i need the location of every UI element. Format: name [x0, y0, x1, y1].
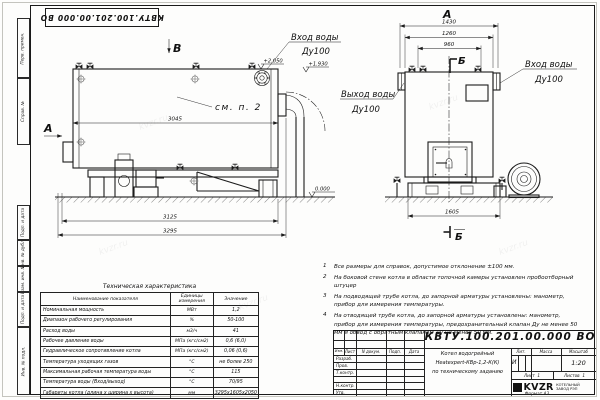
tb-sheets: Листов 1	[553, 373, 596, 378]
dim-1260: 1260	[442, 31, 456, 37]
elev-1930: +1.930	[309, 61, 329, 67]
base-beam	[88, 170, 278, 177]
valve-icon	[249, 63, 256, 69]
label-water-outlet-dn: Ду100	[351, 105, 380, 115]
valve-icon	[499, 177, 506, 183]
table-row: Гидравлическое сопротивление котлаМПа (к…	[41, 347, 259, 357]
valve-icon	[87, 63, 94, 69]
table-row: Температура воды (Вход/выход)°С70/95	[41, 378, 259, 388]
label-water-outlet: Выход воды	[341, 90, 395, 100]
tb-lit-value: И	[511, 359, 518, 366]
fan-icon	[508, 163, 540, 198]
dim-960: 960	[444, 42, 455, 48]
tb-scale-value: 1:20	[561, 359, 596, 367]
tb-header-data: Дата	[404, 349, 424, 354]
note-number: 2	[323, 274, 334, 291]
ground-hatch	[385, 198, 553, 203]
notes-list: 1Все размеры для справок, допустимое отк…	[323, 263, 580, 340]
fan-scroll-side	[115, 160, 133, 197]
tb-scale-header: Масштаб	[561, 349, 596, 354]
brace	[197, 172, 259, 191]
tb-sheet: Лист 1	[511, 373, 553, 378]
elev-0000: 0.000	[315, 186, 331, 192]
table-row: Температура уходящих газов°Сне более 250	[41, 357, 259, 367]
dim-3295: 3295	[163, 229, 177, 235]
col-header-name: Наименование показателя	[41, 293, 171, 306]
valve-icon	[193, 63, 200, 69]
dim-1430: 1430	[442, 20, 456, 26]
dim-1605: 1605	[445, 210, 459, 216]
table-row: Габариты котла (длина х ширина х высота)…	[41, 388, 259, 398]
burner-mount	[63, 142, 73, 162]
table-header-row: Наименование показателя Единицы измерени…	[41, 293, 259, 306]
note-number: 1	[323, 263, 334, 272]
note-item: 1Все размеры для справок, допустимое отк…	[323, 263, 580, 272]
dim-3125: 3125	[163, 215, 177, 221]
base-front	[408, 183, 500, 197]
spec-table-grid: Наименование показателя Единицы измерени…	[40, 292, 259, 399]
section-label-b-bottom: Б	[455, 232, 463, 243]
front-view	[385, 56, 553, 203]
col-header-value: Значение	[213, 293, 258, 306]
tb-row-utv: Утв.	[336, 390, 356, 395]
tb-name-line1: Котел водогрейный	[424, 350, 511, 359]
tb-row-tkontr: Т.контр.	[336, 370, 356, 375]
logo-text: KVZR	[524, 382, 554, 393]
note-item: 2На боковой стене котла в области топочн…	[323, 274, 580, 291]
col-header-units: Единицы измерения	[170, 293, 213, 306]
elevation-mark	[303, 67, 329, 72]
tb-lit-header: Лит.	[511, 349, 531, 354]
valve-icon	[76, 63, 83, 69]
logo-mark-icon	[513, 383, 522, 392]
dim-3045: 3045	[168, 117, 182, 123]
company-name: КОТЕЛЬНЫЙ ЗАВОД РЭП	[556, 383, 580, 392]
tb-mass-header: Масса	[531, 349, 561, 354]
table-row: Расход водым3/ч41	[41, 326, 259, 336]
tb-header-izm: Изм.	[334, 349, 344, 353]
table-row: Рабочее давление водыМПа (кгс/см2)0,6 (6…	[41, 336, 259, 346]
table-row: Номинальная мощностьМВт1,2	[41, 306, 259, 316]
elevation-mark	[258, 64, 284, 69]
tb-header-list: Лист	[344, 349, 356, 354]
view-label-a: А	[43, 122, 53, 135]
drawing-sheet: { "page": { "format_label": "Формат А3",…	[0, 0, 600, 400]
ground-hatch	[55, 198, 335, 203]
valve-icon	[420, 66, 427, 72]
valve-icon	[232, 164, 239, 170]
valve-icon	[177, 164, 184, 170]
socket-icon	[191, 75, 200, 84]
flue-flange	[278, 94, 286, 116]
note-item: 3На подводящей трубе котла, до запорной …	[323, 293, 580, 310]
note-number: 3	[323, 293, 334, 310]
swing-arc	[286, 92, 325, 131]
tb-doc-number: КВТУ.100.201.00.000 ВО	[424, 331, 596, 347]
title-block: Изм. Лист N докум. Подп. Дата Разраб. Пр…	[333, 330, 595, 395]
socket-icon	[77, 138, 86, 147]
watermark-text: kvzr.ru	[98, 238, 130, 258]
tb-row-razrab: Разраб.	[336, 356, 356, 361]
table-row: Диапазон рабочего регулирования%50-100	[41, 316, 259, 326]
tb-row-nkontr: Н.контр.	[336, 383, 356, 388]
tb-header-docnum: N докум.	[356, 349, 386, 354]
spec-table: Техническая характеристика Наименование …	[40, 283, 259, 399]
elevation-mark	[309, 192, 335, 197]
section-label-b-top: Б	[458, 56, 466, 67]
label-water-inlet-front: Вход воды	[525, 60, 573, 70]
label-water-inlet-dn: Ду100	[301, 47, 330, 57]
label-water-inlet: Вход воды	[291, 33, 339, 43]
socket-icon	[77, 75, 86, 84]
watermark-text: kvzr.ru	[498, 238, 530, 258]
table-row: Максимальная рабочая температура воды°С1…	[41, 367, 259, 377]
tb-name-line2: Heatexpert-КВр-1,2-К(К)	[424, 359, 511, 368]
tb-product-name: Котел водогрейный Heatexpert-КВр-1,2-К(К…	[424, 350, 511, 377]
tb-name-line3: по техническому заданию	[424, 368, 511, 377]
callout-see-item-2: см. п. 2	[215, 103, 262, 113]
spec-table-title: Техническая характеристика	[40, 283, 259, 290]
inlet-flange-icon	[254, 70, 269, 85]
valve-icon	[475, 66, 482, 72]
side-view	[55, 63, 335, 202]
note-text: На боковой стене котла в области топочно…	[334, 274, 580, 291]
watermark-text: kvzr.ru	[428, 93, 460, 113]
note-text: Все размеры для справок, допустимое откл…	[334, 263, 580, 272]
valve-icon	[394, 177, 401, 183]
motor-icon	[136, 170, 156, 187]
tb-header-podp: Подп.	[386, 349, 404, 354]
tb-row-prov: Пров.	[336, 363, 356, 368]
format-label: Формат А3	[512, 392, 562, 397]
note-text: На подводящей трубе котла, до запорной а…	[334, 293, 580, 310]
valve-icon	[409, 66, 416, 72]
front-view-dimensions: А 1430 1260 960 1605 Б Б Выход воды Ду10…	[340, 8, 577, 243]
sight-window	[466, 85, 488, 101]
view-label-b: В	[173, 42, 181, 55]
label-water-inlet-front-dn: Ду100	[534, 75, 563, 85]
furnace-door	[428, 142, 472, 182]
